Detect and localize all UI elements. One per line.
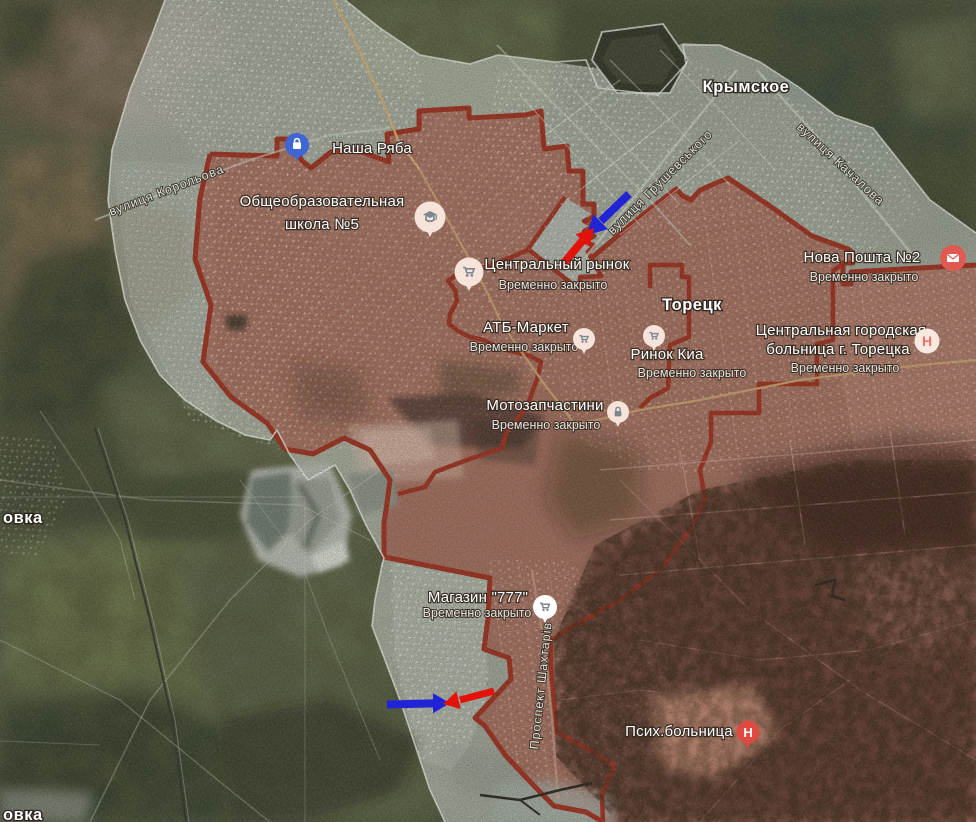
svg-text:Временно закрыто: Временно закрыто — [470, 340, 579, 354]
svg-text:Крымское: Крымское — [703, 78, 790, 96]
svg-text:Временно закрыто: Временно закрыто — [423, 606, 532, 620]
svg-text:больница г. Торецка: больница г. Торецка — [766, 341, 910, 358]
svg-text:овка: овка — [3, 509, 43, 527]
svg-text:Н: Н — [922, 333, 932, 349]
svg-text:Временно закрыто: Временно закрыто — [791, 361, 900, 375]
svg-text:Общеобразовательная: Общеобразовательная — [240, 193, 405, 210]
svg-text:Центральный рынок: Центральный рынок — [484, 256, 629, 273]
svg-text:Мотозапчастини: Мотозапчастини — [486, 397, 603, 414]
svg-text:овка: овка — [3, 806, 43, 822]
svg-text:Центральная городская: Центральная городская — [756, 322, 926, 339]
svg-text:Торецк: Торецк — [662, 296, 722, 314]
svg-text:Псих.больница: Псих.больница — [625, 723, 733, 740]
svg-text:Временно закрыто: Временно закрыто — [810, 270, 919, 284]
svg-text:Временно закрыто: Временно закрыто — [499, 278, 608, 292]
svg-text:школа №5: школа №5 — [285, 216, 359, 233]
svg-text:АТБ-Маркет: АТБ-Маркет — [483, 319, 569, 336]
svg-text:Временно закрыто: Временно закрыто — [492, 418, 601, 432]
svg-text:Нова Пошта №2: Нова Пошта №2 — [804, 249, 921, 266]
svg-text:Ринок Киа: Ринок Киа — [631, 346, 704, 363]
svg-text:Временно закрыто: Временно закрыто — [638, 366, 747, 380]
svg-text:Наша Ряба: Наша Ряба — [332, 140, 412, 157]
svg-text:Н: Н — [743, 725, 752, 740]
svg-text:Магазин "777": Магазин "777" — [428, 589, 528, 606]
